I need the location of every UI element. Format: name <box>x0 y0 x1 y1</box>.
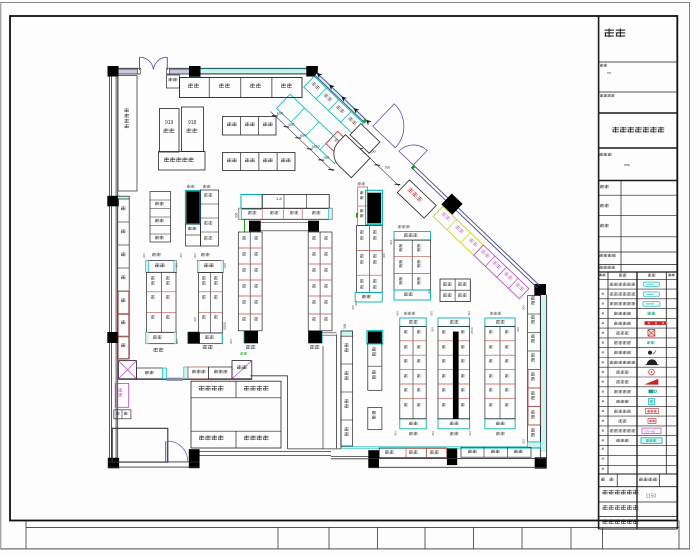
svg-text:300: 300 <box>175 263 179 268</box>
svg-text:306: 306 <box>522 439 526 444</box>
svg-text:300: 300 <box>516 327 520 332</box>
svg-text:300: 300 <box>382 253 386 258</box>
svg-text:306: 306 <box>394 431 398 436</box>
svg-text:306: 306 <box>430 311 434 316</box>
svg-text:306: 306 <box>229 339 233 344</box>
svg-text:1-8: 1-8 <box>276 196 283 201</box>
svg-text:306: 306 <box>142 253 146 258</box>
svg-text:1150: 1150 <box>646 494 657 500</box>
svg-text:919: 919 <box>165 120 174 126</box>
svg-text:306: 306 <box>396 311 400 316</box>
svg-text:760: 760 <box>323 156 329 161</box>
svg-text:306: 306 <box>467 311 471 316</box>
svg-text:918: 918 <box>188 120 197 126</box>
svg-text:650: 650 <box>300 133 306 138</box>
svg-text:2500: 2500 <box>470 327 474 334</box>
svg-text:***: *** <box>624 164 630 170</box>
svg-text:2500: 2500 <box>223 322 227 330</box>
svg-text:650: 650 <box>288 122 294 127</box>
svg-text:**: ** <box>607 72 611 78</box>
svg-text:306: 306 <box>522 305 526 310</box>
svg-text:306: 306 <box>175 339 179 344</box>
svg-text:750*450: 750*450 <box>644 429 656 433</box>
svg-text:306: 306 <box>193 253 197 258</box>
svg-text:200: 200 <box>223 263 227 268</box>
svg-text:300: 300 <box>431 327 435 332</box>
svg-text:306: 306 <box>235 212 239 218</box>
svg-text:306: 306 <box>431 431 435 436</box>
svg-text:306: 306 <box>343 323 347 329</box>
svg-text:306: 306 <box>179 253 183 258</box>
svg-text:306: 306 <box>354 301 358 306</box>
svg-text:750: 750 <box>384 166 390 171</box>
svg-text:650: 650 <box>277 111 283 116</box>
svg-text:306: 306 <box>468 431 472 436</box>
svg-text:300: 300 <box>193 317 197 322</box>
svg-text:306: 306 <box>389 240 393 245</box>
svg-text:306: 306 <box>427 289 431 294</box>
